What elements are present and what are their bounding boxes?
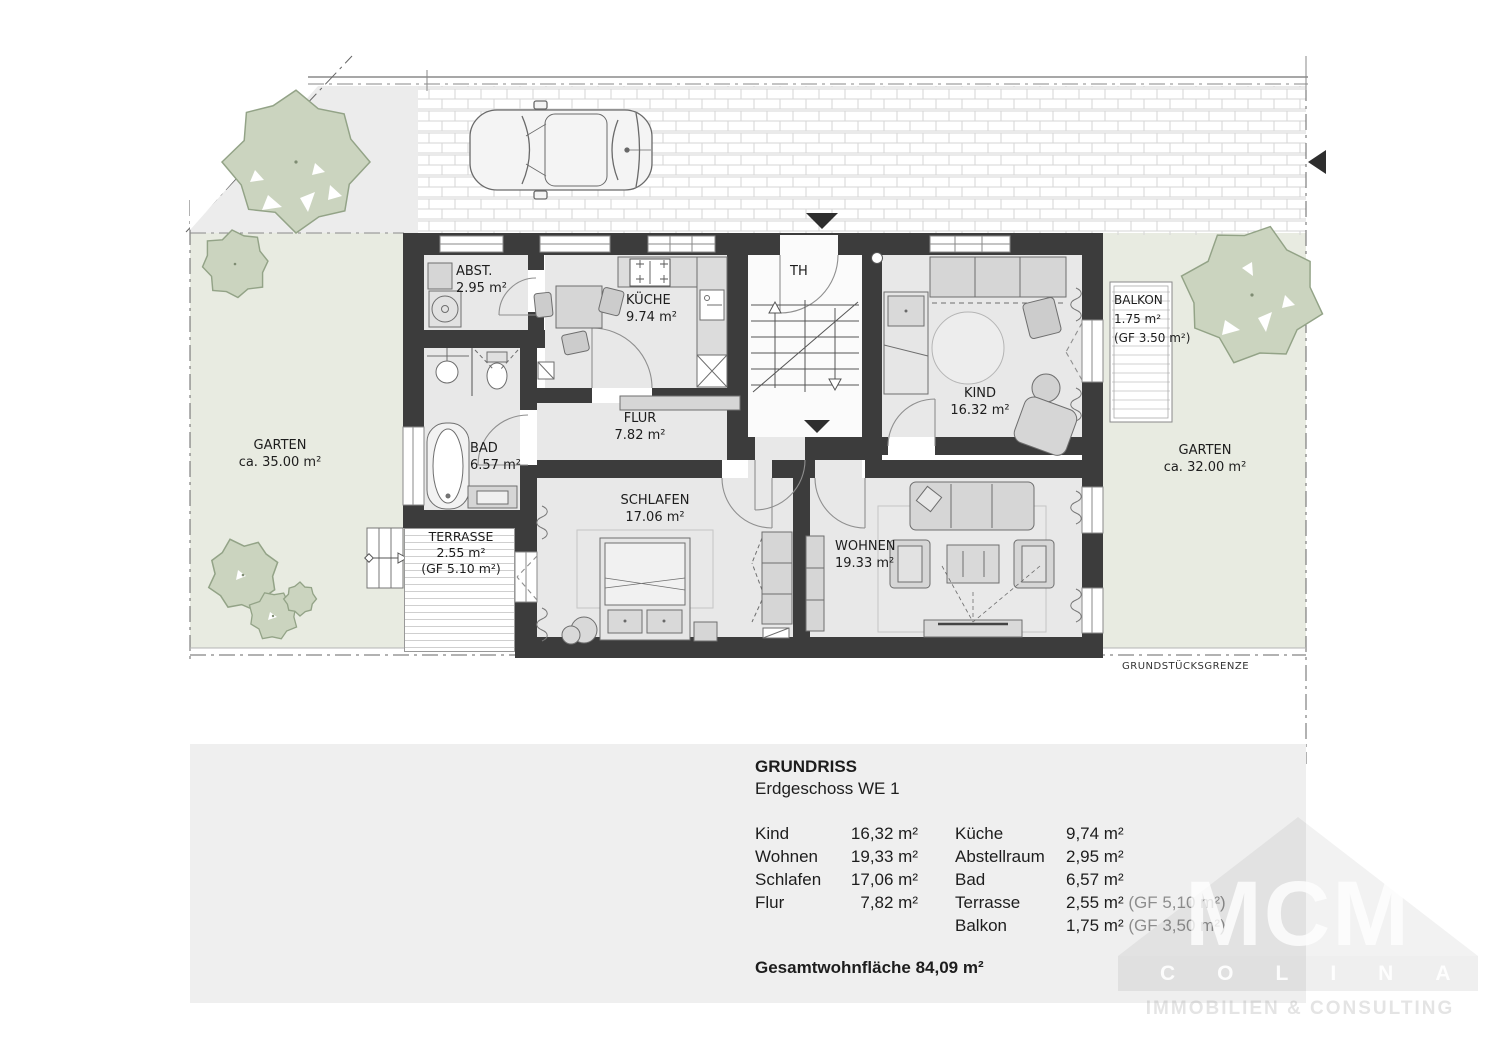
area-row: Schlafen17,06 m²	[755, 870, 918, 892]
panel-subtitle: Erdgeschoss WE 1	[755, 778, 900, 799]
room-label-kind: KIND16.32 m²	[930, 385, 1030, 419]
room-label-kueche: KÜCHE9.74 m²	[626, 292, 677, 326]
boundary-marker-icon	[1308, 150, 1326, 174]
boundary-label: GRUNDSTÜCKSGRENZE	[1122, 658, 1249, 675]
watermark-tagline: IMMOBILIEN & CONSULTING	[1124, 998, 1476, 1020]
area-row: Kind16,32 m²	[755, 824, 918, 846]
terrace-deck	[365, 528, 407, 588]
downpipe-icon	[872, 253, 883, 264]
watermark-monogram: MCM	[1118, 862, 1478, 967]
room-label-balkon: BALKON1.75 m²(GF 3.50 m²)	[1114, 291, 1190, 348]
garden-left-label: GARTENca. 35.00 m²	[230, 437, 330, 471]
panel-title: GRUNDRISS	[755, 756, 857, 777]
room-label-abst: ABST.2.95 m²	[456, 263, 507, 297]
room-label-wohnen: WOHNEN19.33 m²	[835, 538, 896, 572]
area-row: Wohnen19,33 m²	[755, 847, 918, 869]
total-area: Gesamtwohnfläche 84,09 m²	[755, 957, 984, 978]
area-row: Flur7,82 m²	[755, 893, 918, 915]
room-label-terrasse: TERRASSE2.55 m²(GF 5.10 m²)	[405, 529, 517, 577]
car-icon	[470, 101, 652, 199]
room-label-flur: FLUR7.82 m²	[600, 410, 680, 444]
room-label-bad: BAD6.57 m²	[470, 440, 521, 474]
floorplan-page: ABST.2.95 m² KÜCHE9.74 m² TH KIND16.32 m…	[0, 0, 1500, 1060]
watermark-name: COLINA	[1118, 956, 1478, 991]
garden-right-label: GARTENca. 32.00 m²	[1155, 442, 1255, 476]
room-label-schlafen: SCHLAFEN17.06 m²	[600, 492, 710, 526]
room-label-th: TH	[790, 263, 808, 280]
